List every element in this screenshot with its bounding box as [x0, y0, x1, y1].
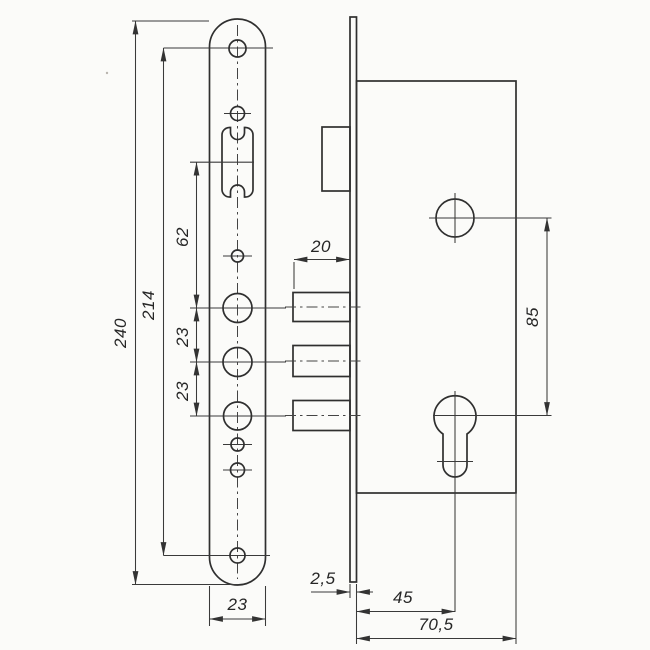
dim-latch-to-first-bolt-label: 62: [173, 227, 192, 247]
dim-bolt-spacing-upper-label: 23: [173, 327, 192, 348]
lock-technical-drawing: 240 214 62 23 23 23 20: [0, 0, 650, 650]
paper-background: [0, 0, 650, 650]
dim-bolt-spacing-lower-label: 23: [173, 381, 192, 402]
dim-backset-label: 45: [393, 588, 413, 607]
dim-screw-centers-label: 214: [139, 290, 158, 321]
dim-faceplate-width-label: 23: [227, 595, 248, 614]
dim-spindle-to-cylinder-label: 85: [523, 307, 542, 327]
dim-faceplate-thickness-label: 2,5: [309, 569, 335, 588]
dim-bolt-throw-label: 20: [310, 237, 331, 256]
scan-speck: [106, 72, 108, 74]
dim-body-depth-label: 70,5: [418, 615, 453, 634]
dim-overall-height-label: 240: [111, 318, 130, 349]
